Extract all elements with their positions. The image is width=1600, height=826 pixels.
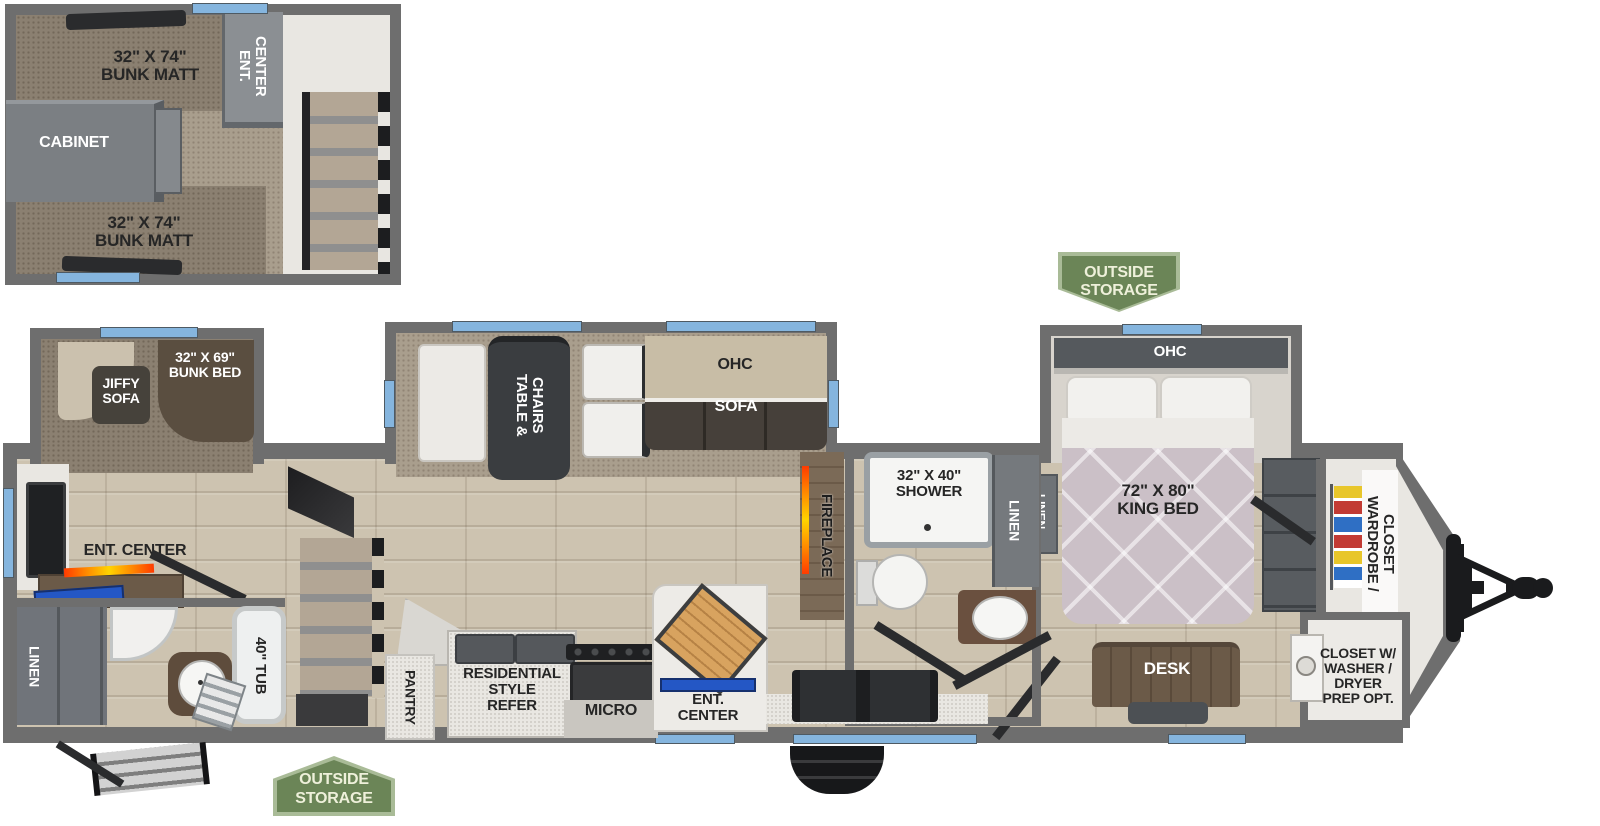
main-stairs: [300, 538, 372, 696]
jiffy-sofa-label: JIFFY SOFA: [86, 376, 156, 406]
rear-entry-steps: [90, 742, 210, 796]
rear-entcenter-label: ENT. CENTER: [70, 542, 200, 559]
king-bed-sheet: [1062, 418, 1254, 452]
front-closet-wall: [1316, 459, 1326, 619]
kitchen-sink: [792, 670, 938, 722]
bottom-window-entcenter: [655, 734, 735, 744]
rear-tv: [26, 482, 66, 578]
stairs-landing: [296, 694, 368, 726]
dinette-chair-1: [582, 344, 650, 400]
dinette-ohc-label: OHC: [685, 356, 785, 373]
desk-label: DESK: [1122, 660, 1212, 678]
loft-stairs-rail: [378, 92, 390, 274]
toilet: [872, 554, 928, 610]
dinette-window-left: [452, 321, 582, 332]
loft-cabinet-label: CABINET: [14, 134, 134, 151]
range-knobs: [566, 644, 656, 660]
dinette-sofa-label: SOFA: [690, 398, 782, 415]
closet-clothes: [1334, 486, 1362, 588]
entry-step-main: [790, 746, 884, 794]
bunk-slide-opening: [41, 443, 253, 473]
king-bed: [1062, 448, 1254, 624]
dinette-window-side-l: [384, 380, 395, 428]
rear-linen-label: LINEN: [20, 620, 48, 714]
outside-storage-top-label: OUTSIDE STORAGE: [1080, 256, 1157, 301]
micro-label: MICRO: [564, 702, 658, 719]
loft-window-top: [192, 3, 268, 14]
bed-slide-window: [1122, 324, 1202, 335]
rv-floorplan: ENT. CENTER CABINET 32" X 74" BUNK MATT …: [0, 0, 1600, 826]
outside-storage-bottom-label: OUTSIDE STORAGE: [295, 771, 372, 812]
outside-storage-badge-top: OUTSIDE STORAGE: [1058, 252, 1180, 312]
main-stairs-rail: [372, 538, 384, 698]
bedroom-ohc-label: OHC: [1130, 344, 1210, 360]
dinette-table-label: TABLE & CHAIRS: [494, 346, 564, 464]
shower-drain: [924, 524, 931, 531]
loft-cabinet-drawers: [154, 108, 182, 194]
desk-chair: [1128, 702, 1208, 724]
loft-window-bottom: [56, 272, 140, 283]
loft-stairs: [302, 92, 386, 270]
king-bed-label: 72" X 80" KING BED: [1072, 482, 1244, 519]
bunk-bed-label: 32" X 69" BUNK BED: [152, 350, 258, 380]
dinette-bench-left: [418, 344, 486, 462]
fireplace-flame: [802, 466, 809, 574]
bath-linen-label: LINEN: [998, 466, 1030, 576]
bath-sink: [972, 596, 1028, 640]
closet-rod: [1330, 484, 1333, 590]
fireplace-label: FIREPLACE: [812, 458, 840, 614]
kitchen-entcenter-label: ENT. CENTER: [652, 692, 764, 724]
dinette-window-side-r: [828, 380, 839, 428]
pantry-label: PANTRY: [392, 658, 428, 736]
closet-washer-label: CLOSET W/ WASHER / DRYER PREP OPT.: [1312, 646, 1404, 706]
rear-wall-window: [3, 488, 14, 578]
bottom-window-sink: [793, 734, 977, 744]
shower-label: 32" X 40" SHOWER: [864, 468, 994, 500]
loft-bunk-top-label: 32" X 74" BUNK MATT: [58, 48, 242, 85]
loft-bunk-bottom-label: 32" X 74" BUNK MATT: [52, 214, 236, 251]
refer-label: RESIDENTIAL STYLE REFER: [447, 666, 577, 715]
hitch: [1446, 528, 1556, 648]
rear-tub-label: 40" TUB: [244, 618, 276, 714]
outside-storage-badge-bottom: OUTSIDE STORAGE: [273, 756, 395, 816]
bottom-window-desk: [1168, 734, 1246, 744]
wardrobe-label: WARDROBE / CLOSET: [1362, 470, 1398, 618]
refer-lid-left: [455, 634, 515, 664]
dinette-chair-2: [582, 402, 650, 458]
kitchen-tv-shelf: [660, 678, 756, 692]
bunk-slide-window: [100, 327, 198, 338]
dinette-window-right: [666, 321, 816, 332]
